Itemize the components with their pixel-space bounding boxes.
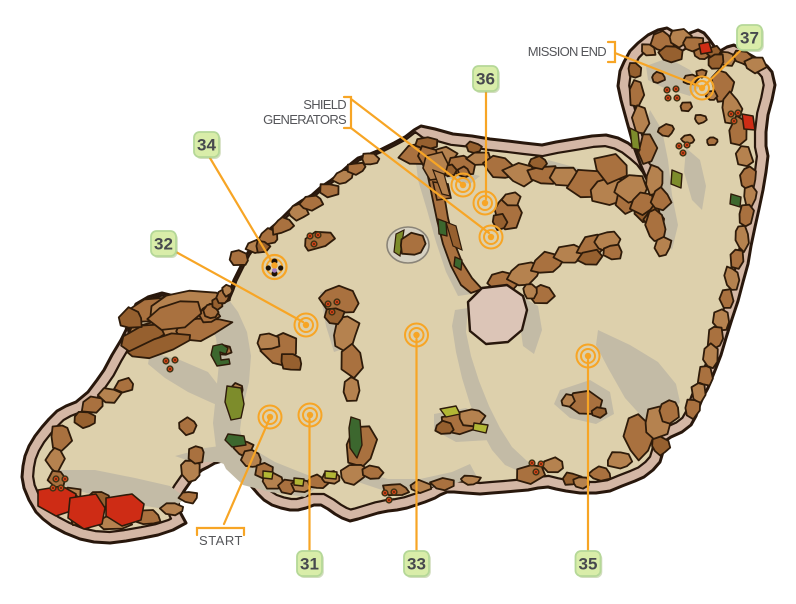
svg-text:32: 32: [154, 235, 173, 254]
svg-text:GENERATORS: GENERATORS: [263, 112, 347, 127]
svg-text:MISSION END: MISSION END: [528, 44, 607, 59]
svg-text:37: 37: [740, 29, 759, 48]
svg-text:35: 35: [579, 555, 598, 574]
svg-text:33: 33: [407, 555, 426, 574]
svg-text:36: 36: [476, 70, 495, 89]
svg-text:31: 31: [300, 555, 319, 574]
svg-text:SHIELD: SHIELD: [303, 97, 346, 112]
svg-text:START: START: [199, 533, 243, 548]
svg-text:34: 34: [197, 136, 216, 155]
